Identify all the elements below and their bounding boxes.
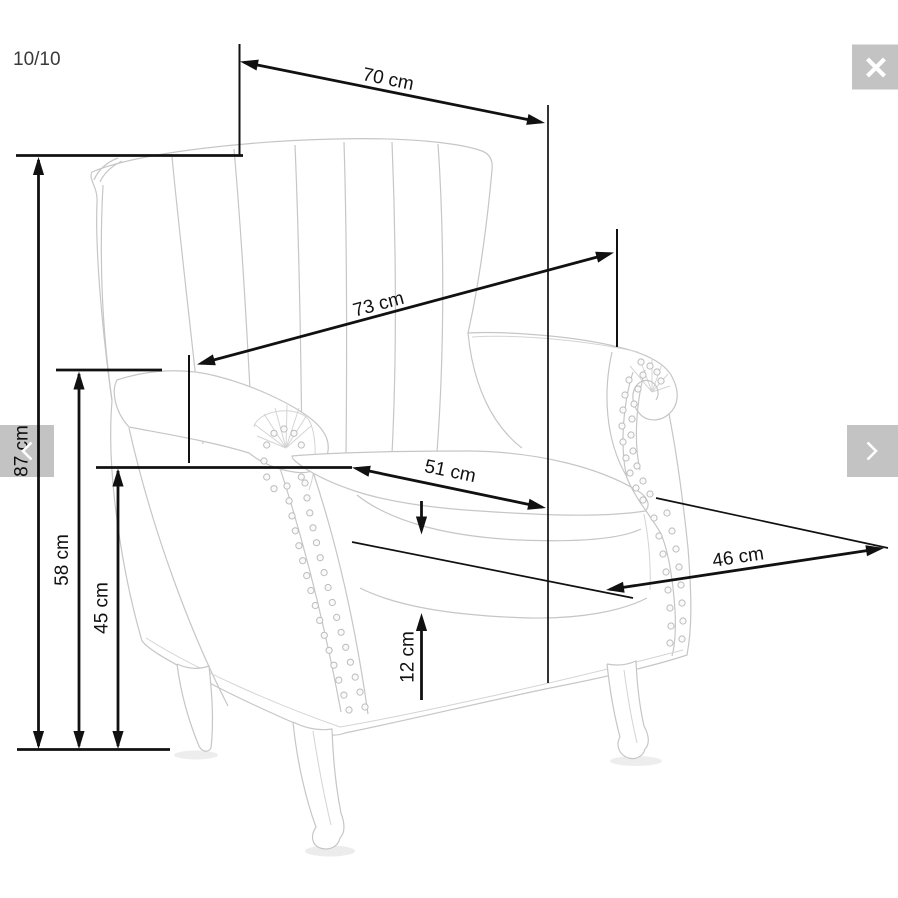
svg-text:58 cm: 58 cm	[52, 534, 73, 586]
svg-text:12 cm: 12 cm	[397, 631, 418, 683]
svg-text:45 cm: 45 cm	[91, 582, 112, 634]
svg-text:10/10: 10/10	[13, 49, 61, 70]
